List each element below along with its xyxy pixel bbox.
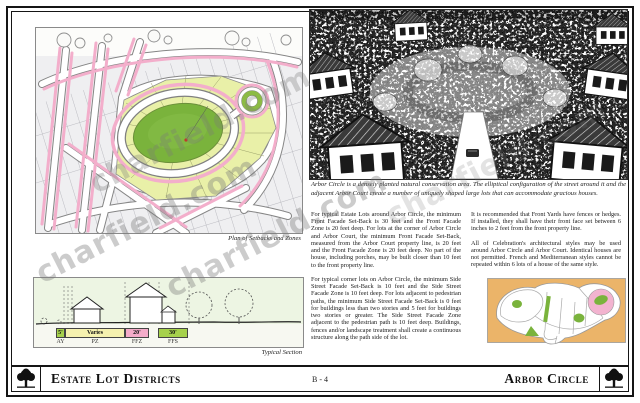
setbacks-plan-figure: [35, 27, 303, 234]
section-caption: Typical Section: [33, 349, 302, 356]
bar-segment-ffz: 20': [125, 328, 149, 338]
locator-map-drawing: [487, 278, 626, 348]
bar-segment-pz: Varies: [65, 328, 125, 338]
tree-icon: [602, 368, 626, 390]
plan-caption: Plan of Setbacks and Zones: [35, 235, 301, 242]
parked-car: [466, 149, 479, 157]
footer-tree-logo-left: [12, 367, 41, 391]
paragraph: For typical corner lots on Arbor Circle,…: [311, 276, 461, 341]
bar-label-ffs: FFS: [158, 339, 188, 345]
bar-gap: [149, 328, 158, 338]
page-number: B - 4: [41, 375, 599, 384]
tree-icon: [14, 368, 38, 390]
footer-band: Estate Lot Districts B - 4 Arbor Circle: [11, 366, 629, 392]
paragraph: All of Celebration's architectural style…: [471, 240, 621, 269]
aerial-view-drawing: [310, 10, 627, 179]
horizon-band: [310, 10, 627, 20]
paragraph: It is recommended that Front Yards have …: [471, 211, 621, 233]
locator-map-figure: [487, 278, 626, 348]
paragraph: For typical Estate Lots around Arbor Cir…: [311, 211, 461, 269]
focal-marker: [184, 138, 187, 141]
body-text-column-1: For typical Estate Lots around Arbor Cir…: [311, 211, 461, 348]
body-text-column-2: It is recommended that Front Yards have …: [471, 211, 621, 276]
bar-label-pz: PZ: [65, 339, 125, 345]
bar-segment-ay: 5': [56, 328, 65, 338]
footer-tree-logo-right: [599, 367, 628, 391]
bar-label-ay: AY: [56, 339, 65, 345]
bar-label-ffz: FFZ: [125, 339, 149, 345]
setback-dimension-bar: 5' Varies 20' 30': [56, 328, 188, 338]
setback-bar-labels: AY PZ FFZ FFS: [56, 339, 188, 345]
setbacks-plan-drawing: [36, 28, 302, 233]
aerial-view-figure: [309, 9, 628, 180]
aerial-caption: Arbor Circle is a densely planted natura…: [311, 181, 626, 198]
pattern-book-page: Plan of Setbacks and Zones: [0, 0, 640, 403]
bar-segment-ffs: 30': [158, 328, 188, 338]
typical-section-figure: 5' Varies 20' 30' AY PZ FFZ FFS: [33, 277, 304, 348]
footer-content: Estate Lot Districts B - 4 Arbor Circle: [41, 367, 599, 391]
